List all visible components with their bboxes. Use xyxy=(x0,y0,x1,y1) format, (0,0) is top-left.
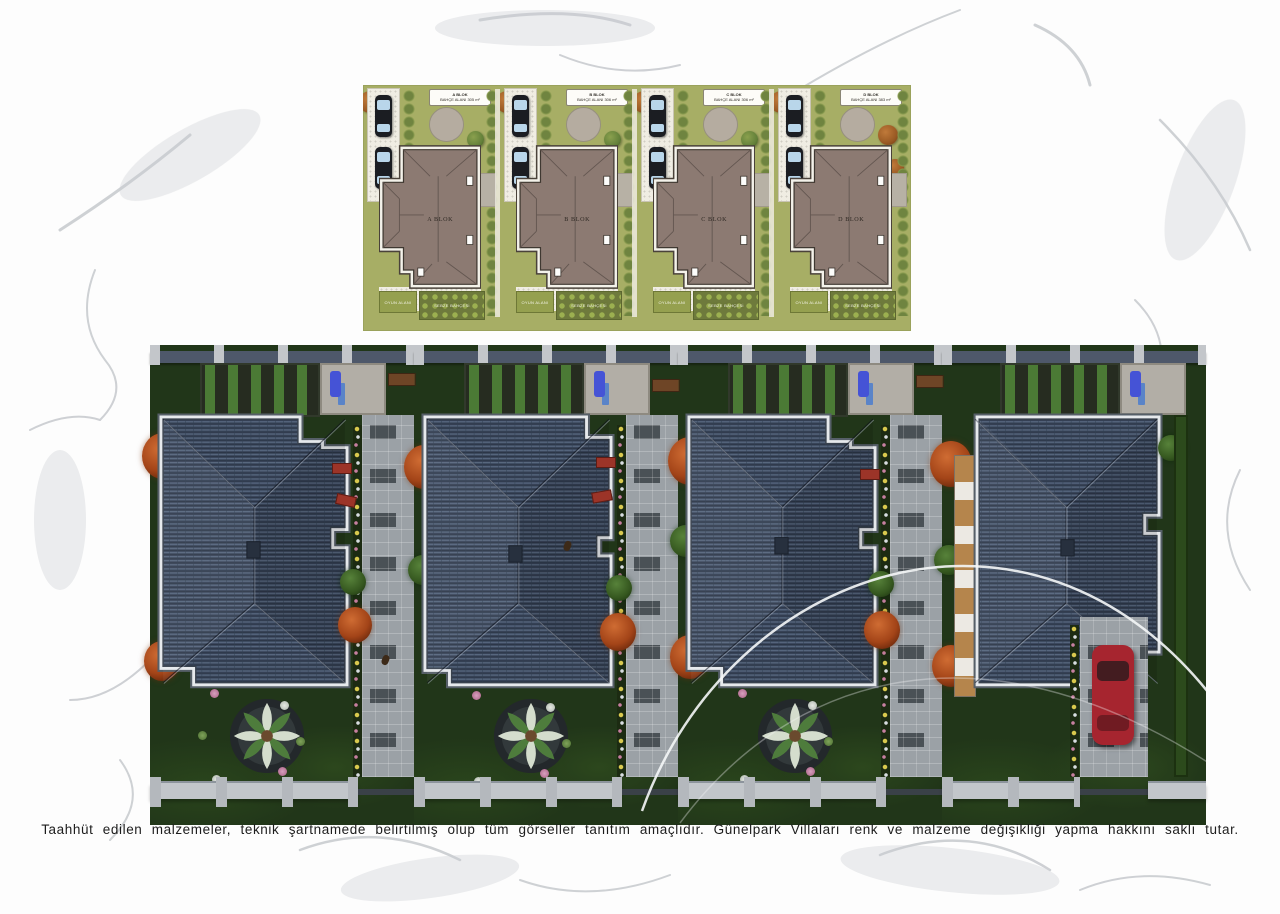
villa-roof xyxy=(684,413,880,699)
play-area-plot: OYUN ALANI xyxy=(653,291,691,313)
flower-bush xyxy=(296,737,305,746)
vegetable-rows xyxy=(202,365,318,415)
car-top-icon xyxy=(649,95,666,137)
site-plan-plot-d: D BLOK BAHÇE ALANI 383 m² D BLOK OYUN AL… xyxy=(774,85,911,331)
flower-bush xyxy=(806,767,815,776)
site-plan-plot-b: B BLOK BAHÇE ALANI 306 m² B BLOK OYUN AL… xyxy=(500,85,637,331)
garden-bench xyxy=(388,373,416,386)
slide-icon xyxy=(594,371,605,397)
flower-border xyxy=(1070,625,1079,777)
house-block-name: B BLOK xyxy=(564,217,590,223)
garden-bench xyxy=(652,379,680,392)
flower-bush xyxy=(210,689,219,698)
block-garden-area: BAHÇE ALANI 305 m² xyxy=(440,98,480,102)
slide-icon xyxy=(330,371,341,397)
car-top-icon xyxy=(786,95,803,137)
garden-fountain xyxy=(756,697,834,775)
brochure-page: A BLOK BAHÇE ALANI 305 m² A BLOK OYUN AL… xyxy=(0,0,1280,914)
slide-icon xyxy=(858,371,869,397)
flower-bush xyxy=(546,703,555,712)
vegetable-garden-plot: SEBZE BAHÇESİ xyxy=(419,291,485,320)
site-plan-plot-a: A BLOK BAHÇE ALANI 305 m² A BLOK OYUN AL… xyxy=(363,85,500,331)
driveway-entrance xyxy=(1080,789,1148,795)
flower-bush xyxy=(808,701,817,710)
villa-1 xyxy=(150,345,414,825)
villa-roof xyxy=(156,413,352,699)
plaza-circle xyxy=(703,107,738,142)
patio xyxy=(753,173,770,207)
front-wall-posts xyxy=(942,777,1080,807)
garden-fountain xyxy=(228,697,306,775)
flower-border xyxy=(617,425,626,777)
play-area-plot: OYUN ALANI xyxy=(790,291,828,313)
plaza-circle xyxy=(429,107,464,142)
block-garden-area: BAHÇE ALANI 383 m² xyxy=(851,98,891,102)
house-footprint: B BLOK xyxy=(516,145,618,289)
villa-roof xyxy=(420,413,616,699)
tree-orange-icon xyxy=(864,611,900,649)
play-area-plot: OYUN ALANI xyxy=(516,291,554,313)
car-top-icon xyxy=(375,95,392,137)
block-info-label: A BLOK BAHÇE ALANI 305 m² xyxy=(429,89,491,106)
fence-posts xyxy=(942,345,1206,365)
patio xyxy=(890,173,907,207)
villa-4 xyxy=(942,345,1206,825)
driveway-entrance xyxy=(622,789,678,795)
playground xyxy=(1122,365,1184,413)
block-info-label: B BLOK BAHÇE ALANI 306 m² xyxy=(566,89,628,106)
vegetable-garden-plot: SEBZE BAHÇESİ xyxy=(556,291,622,320)
play-area-plot: OYUN ALANI xyxy=(379,291,417,313)
picnic-bench xyxy=(332,463,352,474)
red-car xyxy=(1092,645,1134,745)
house-block-name: C BLOK xyxy=(701,217,727,223)
playground xyxy=(850,365,912,413)
vegetable-rows xyxy=(1002,365,1118,415)
flower-border xyxy=(881,425,890,777)
vegetable-garden-plot: SEBZE BAHÇESİ xyxy=(830,291,896,320)
flower-bush xyxy=(198,731,207,740)
site-plan-plot-c: C BLOK BAHÇE ALANI 306 m² C BLOK OYUN AL… xyxy=(637,85,774,331)
vegetable-rows xyxy=(730,365,846,415)
block-info-label: C BLOK BAHÇE ALANI 306 m² xyxy=(703,89,765,106)
front-wall-posts xyxy=(150,777,358,807)
house-block-name: A BLOK xyxy=(427,217,453,223)
tree-green-icon xyxy=(868,571,894,597)
flower-bush xyxy=(472,691,481,700)
flower-bush xyxy=(562,739,571,748)
flower-bush xyxy=(280,701,289,710)
disclaimer-text: Taahhüt edilen malzemeler, teknik şartna… xyxy=(40,822,1240,837)
tree-green-icon xyxy=(340,569,366,595)
plaza-circle xyxy=(566,107,601,142)
villa-2 xyxy=(414,345,678,825)
tree-orange-icon xyxy=(600,613,636,651)
side-hedge xyxy=(1174,415,1188,777)
vegetable-rows xyxy=(466,365,582,415)
driveway-entrance xyxy=(886,789,942,795)
aerial-render xyxy=(150,345,1206,825)
site-plan: A BLOK BAHÇE ALANI 305 m² A BLOK OYUN AL… xyxy=(363,85,911,331)
picnic-bench xyxy=(860,469,880,480)
flower-bush xyxy=(824,737,833,746)
picnic-bench xyxy=(596,457,616,468)
front-wall-posts xyxy=(414,777,622,807)
house-footprint: D BLOK xyxy=(790,145,892,289)
house-footprint: C BLOK xyxy=(653,145,755,289)
driveway-entrance xyxy=(358,789,414,795)
playground xyxy=(586,365,648,413)
tree-orange-icon xyxy=(338,607,372,643)
patio xyxy=(479,173,496,207)
garden-fountain xyxy=(492,697,570,775)
plaza-circle xyxy=(840,107,875,142)
patio xyxy=(616,173,633,207)
tree-orange-icon xyxy=(878,125,898,145)
villa-3 xyxy=(678,345,942,825)
tree-green-icon xyxy=(606,575,632,601)
car-top-icon xyxy=(512,95,529,137)
flower-bush xyxy=(278,767,287,776)
block-garden-area: BAHÇE ALANI 306 m² xyxy=(577,98,617,102)
fence-posts xyxy=(414,345,678,365)
vegetable-garden-plot: SEBZE BAHÇESİ xyxy=(693,291,759,320)
block-garden-area: BAHÇE ALANI 306 m² xyxy=(714,98,754,102)
fence-posts xyxy=(150,345,414,365)
block-info-label: D BLOK BAHÇE ALANI 383 m² xyxy=(840,89,902,106)
front-wall xyxy=(1148,783,1206,799)
house-footprint: A BLOK xyxy=(379,145,481,289)
playground xyxy=(322,365,384,413)
flower-bush xyxy=(738,689,747,698)
garden-bench xyxy=(916,375,944,388)
slide-icon xyxy=(1130,371,1141,397)
house-block-name: D BLOK xyxy=(838,217,864,223)
flower-border xyxy=(353,425,362,777)
fence-posts xyxy=(678,345,942,365)
front-wall-posts xyxy=(678,777,886,807)
